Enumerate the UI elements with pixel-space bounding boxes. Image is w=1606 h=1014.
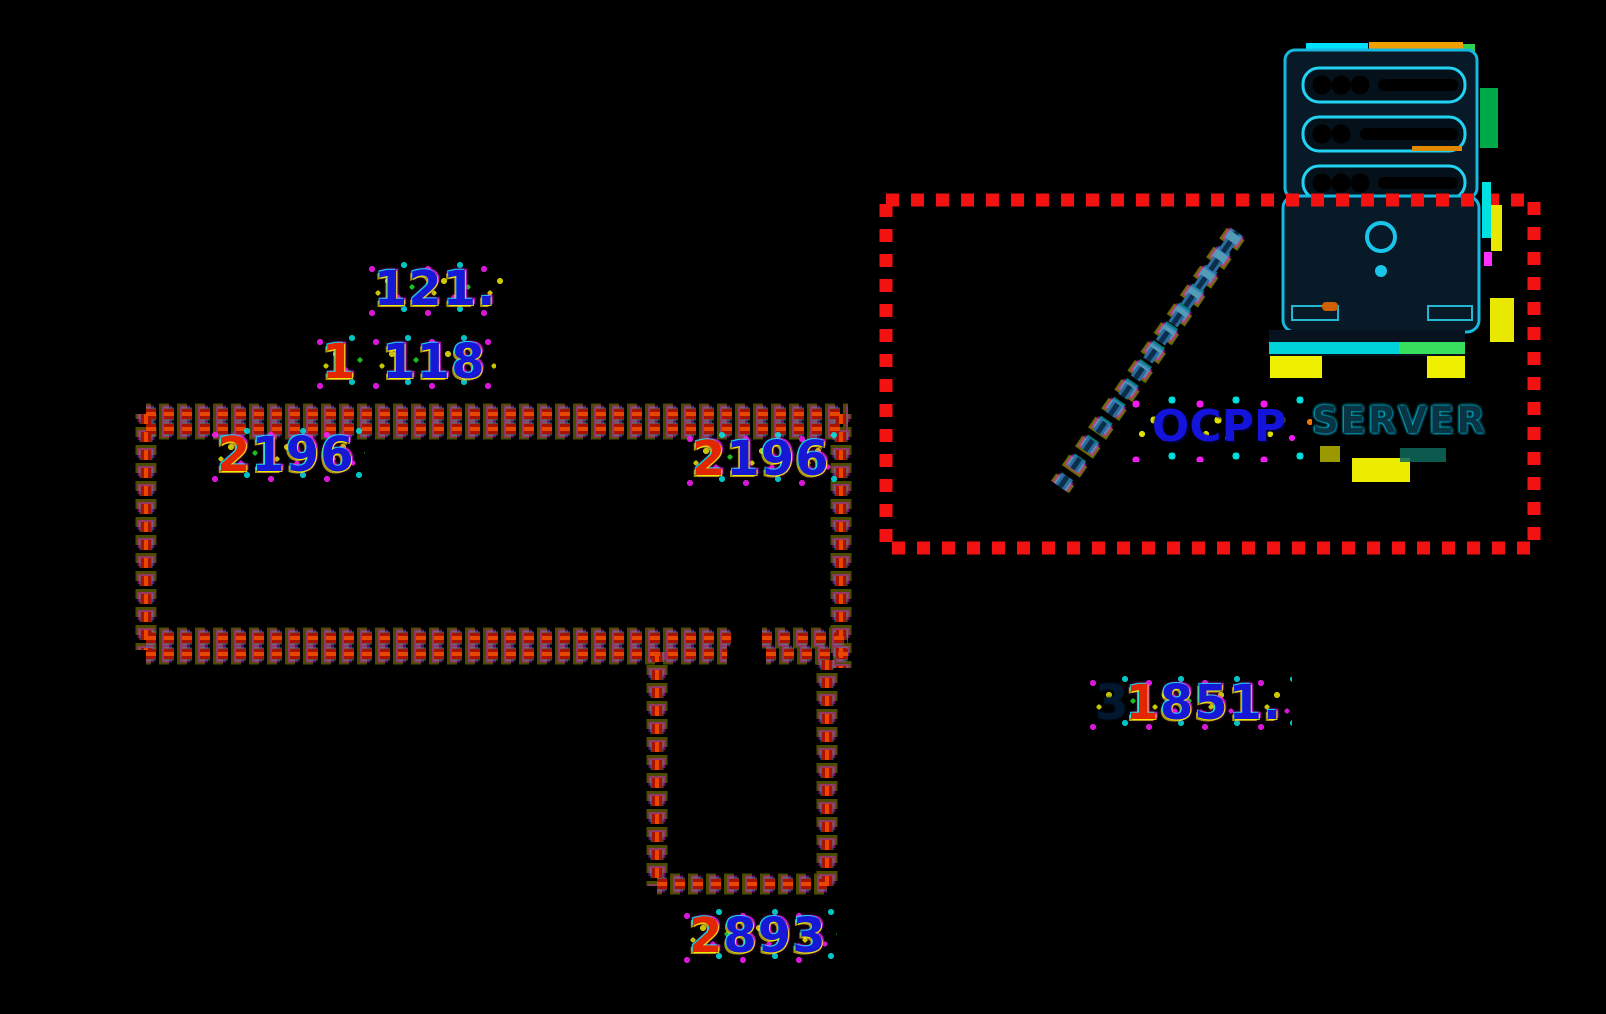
server-label: SERVER bbox=[1312, 402, 1472, 439]
dimension-digits-blue: 196 bbox=[251, 427, 354, 483]
server-drive-bay bbox=[1303, 117, 1465, 151]
dimension-label-121: 121. bbox=[374, 265, 496, 313]
server-lower-cabinet bbox=[1283, 196, 1479, 332]
server-base-band bbox=[1269, 342, 1399, 354]
dimension-digit-red: 1 bbox=[322, 334, 356, 390]
ocpp-label: OCPP bbox=[1126, 392, 1312, 462]
server-base-band bbox=[1399, 342, 1465, 354]
dimension-digits-blue: 196 bbox=[726, 431, 829, 487]
power-led-icon bbox=[1375, 265, 1387, 277]
dimension-label-2893: 2893 bbox=[689, 912, 827, 960]
server-foot bbox=[1270, 356, 1322, 378]
dimension-digits-blue: 118 bbox=[382, 334, 485, 390]
server-vent-glitch bbox=[1322, 302, 1338, 311]
diagram-graphics bbox=[0, 0, 1606, 1014]
dimension-digits-blue: 851. bbox=[1160, 675, 1282, 731]
dimension-label-1851: 31851. bbox=[1095, 679, 1282, 727]
dimension-digit-red: 2 bbox=[692, 431, 726, 487]
server-tower-icon bbox=[1269, 42, 1479, 378]
dimension-digit-red: 2 bbox=[217, 427, 251, 483]
server-foot bbox=[1427, 356, 1465, 378]
dimension-digit-red: 1 bbox=[1125, 675, 1159, 731]
dimension-label-118: 1118 bbox=[322, 338, 486, 386]
dimension-digits-blue: 121. bbox=[374, 261, 496, 317]
diagram-canvas: 121. 1118 2196 2196 31851. 2893 OCPP SER… bbox=[0, 0, 1606, 1014]
dimension-digit-red: 2 bbox=[689, 908, 723, 964]
ocpp-label-block: OCPP bbox=[1126, 392, 1312, 462]
dimension-digits-blue: 893 bbox=[723, 908, 826, 964]
dimension-label-2196-right: 2196 bbox=[692, 435, 830, 483]
server-drive-bay bbox=[1303, 68, 1465, 102]
dimension-label-2196-left: 2196 bbox=[217, 431, 355, 479]
